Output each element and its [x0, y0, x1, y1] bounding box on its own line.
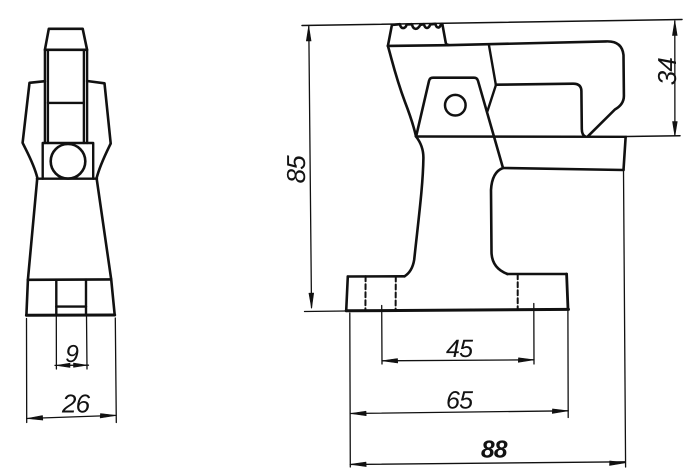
svg-text:9: 9 — [65, 341, 79, 368]
svg-text:34: 34 — [652, 58, 682, 86]
svg-text:26: 26 — [61, 389, 91, 419]
svg-text:65: 65 — [446, 386, 473, 414]
svg-text:85: 85 — [281, 155, 311, 184]
svg-text:88: 88 — [481, 437, 508, 464]
svg-text:45: 45 — [446, 335, 473, 363]
